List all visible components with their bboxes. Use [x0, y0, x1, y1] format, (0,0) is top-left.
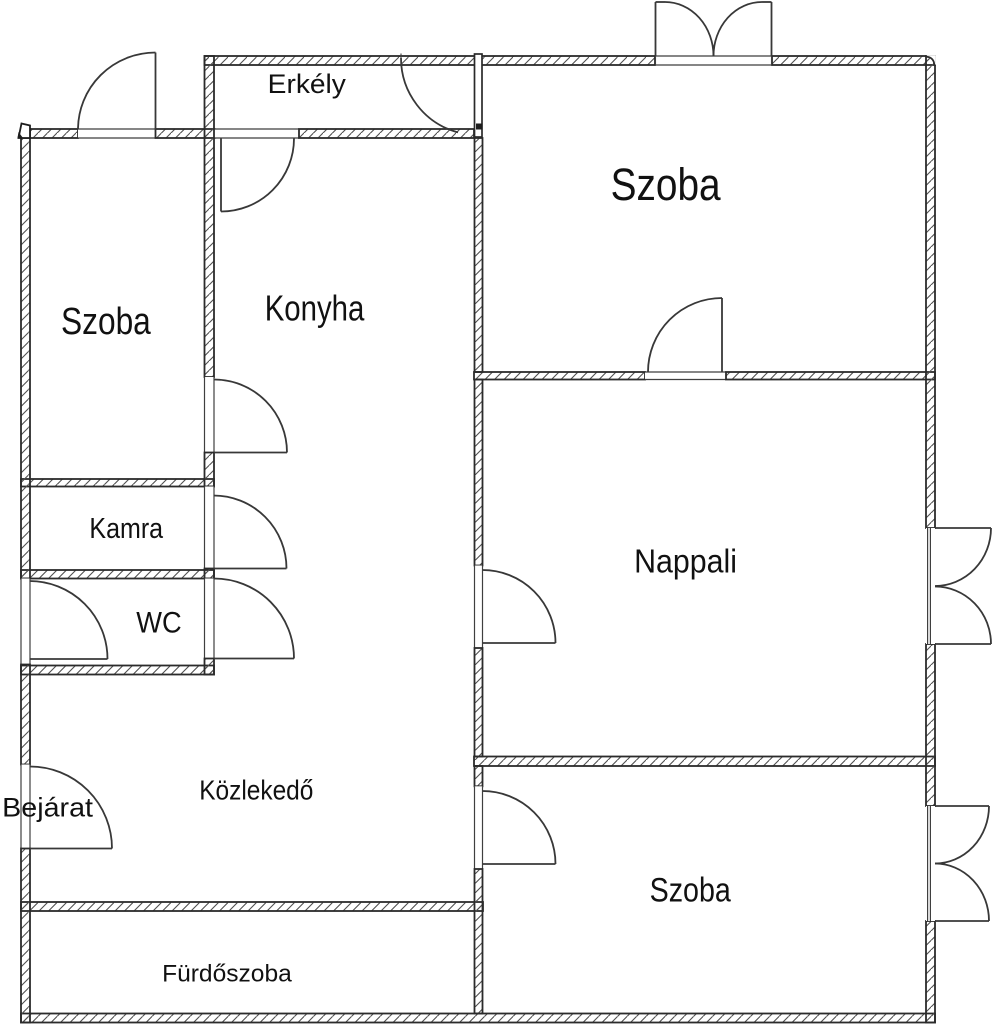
svg-text:Szoba: Szoba [611, 159, 722, 210]
svg-text:Kamra: Kamra [89, 513, 164, 545]
svg-text:Nappali: Nappali [634, 542, 737, 579]
svg-text:Bejárat: Bejárat [2, 793, 93, 823]
svg-text:WC: WC [136, 607, 181, 640]
svg-text:Erkély: Erkély [268, 69, 347, 99]
svg-text:Szoba: Szoba [650, 872, 732, 910]
svg-text:Közlekedő: Közlekedő [199, 775, 313, 806]
svg-text:Fürdőszoba: Fürdőszoba [162, 960, 292, 987]
svg-text:Konyha: Konyha [265, 288, 365, 328]
svg-text:Szoba: Szoba [61, 301, 151, 343]
